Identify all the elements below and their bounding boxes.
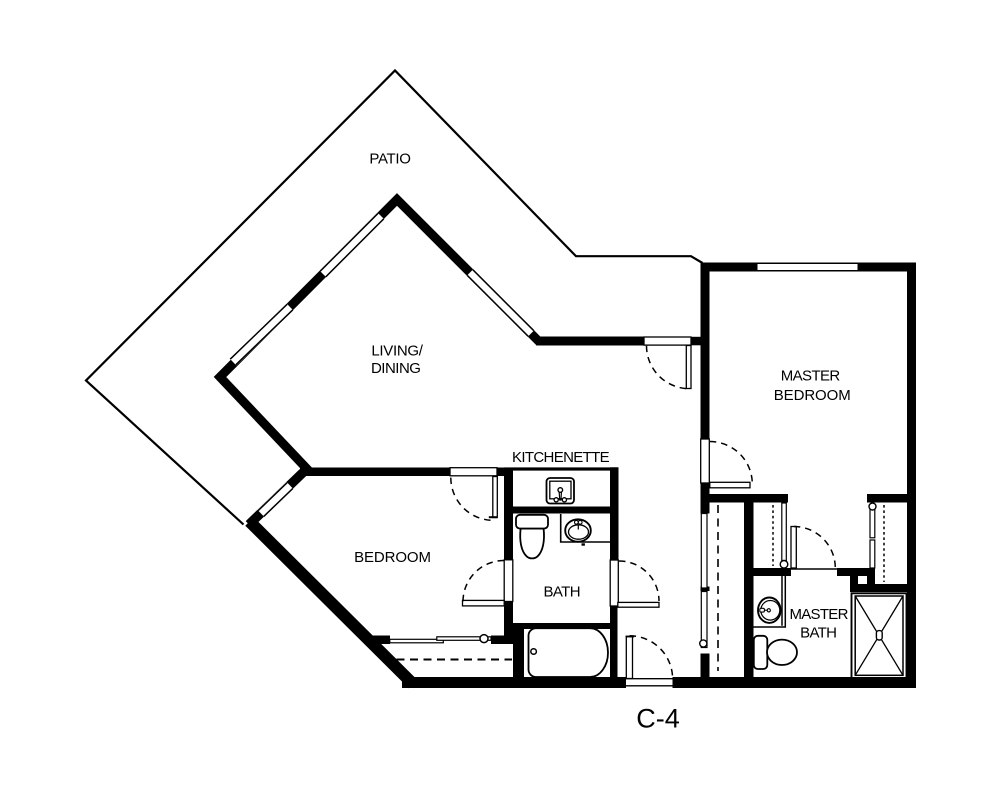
svg-text:MASTER: MASTER	[789, 606, 848, 623]
svg-text:KITCHENETTE: KITCHENETTE	[512, 449, 610, 466]
svg-text:PATIO: PATIO	[369, 151, 410, 168]
svg-text:BEDROOM: BEDROOM	[354, 549, 431, 566]
svg-text:C-4: C-4	[636, 703, 680, 733]
svg-text:DINING: DINING	[371, 360, 421, 377]
svg-text:BEDROOM: BEDROOM	[774, 387, 851, 404]
svg-text:LIVING/: LIVING/	[371, 342, 423, 359]
svg-text:BATH: BATH	[800, 625, 836, 642]
svg-text:BATH: BATH	[543, 584, 580, 601]
svg-text:MASTER: MASTER	[781, 367, 841, 384]
